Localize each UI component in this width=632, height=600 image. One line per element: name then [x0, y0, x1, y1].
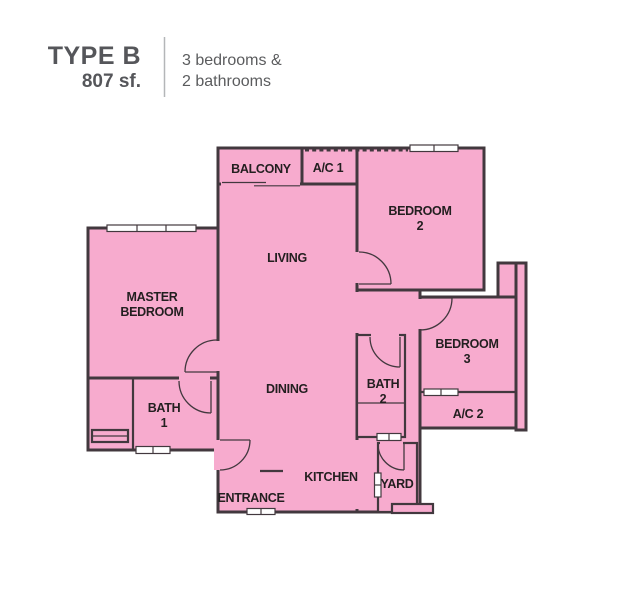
threshold-flare	[392, 504, 433, 513]
room-label-bedroom3-num: 3	[464, 352, 471, 366]
description-line2: 2 bathrooms	[182, 73, 271, 90]
floor-plan: TYPE B 807 sf. 3 bedrooms & 2 bathrooms	[0, 0, 632, 600]
room-label-bedroom2: BEDROOM	[388, 204, 451, 218]
opening-bedroom3-door	[416, 299, 424, 329]
opening-hallway	[353, 292, 361, 333]
room-label-master-line2: BEDROOM	[120, 305, 183, 319]
opening-master-door	[214, 341, 222, 371]
wall-stub-top-right	[498, 263, 516, 297]
opening-bath1-door	[179, 374, 210, 382]
room-label-ac2: A/C 2	[453, 407, 484, 421]
wall-fin-right	[516, 263, 526, 430]
room-label-bath1-num: 1	[161, 416, 168, 430]
header: TYPE B 807 sf. 3 bedrooms & 2 bathrooms	[48, 37, 282, 97]
room-label-living: LIVING	[267, 251, 307, 265]
room-label-bath2: BATH	[367, 377, 400, 391]
floor-plan-page: TYPE B 807 sf. 3 bedrooms & 2 bathrooms	[0, 0, 632, 600]
room-blocks	[88, 148, 526, 513]
room-label-entrance: ENTRANCE	[217, 491, 284, 505]
description-line1: 3 bedrooms &	[182, 52, 282, 69]
opening-entrance-door	[214, 440, 222, 470]
room-label-bedroom2-num: 2	[417, 219, 424, 233]
room-label-yard: YARD	[380, 477, 413, 491]
room-label-dining: DINING	[266, 382, 308, 396]
window-master-bedroom	[107, 225, 196, 232]
room-label-bath1: BATH	[148, 401, 181, 415]
room-label-bath2-num: 2	[380, 392, 387, 406]
unit-area-label: 807 sf.	[82, 71, 141, 92]
room-label-master-line1: MASTER	[127, 290, 178, 304]
unit-type-label: TYPE B	[48, 42, 141, 70]
room-label-kitchen: KITCHEN	[304, 470, 358, 484]
room-label-balcony: BALCONY	[231, 162, 292, 176]
opening-bath2-door	[371, 331, 399, 339]
opening-bedroom2-door	[353, 252, 361, 283]
room-label-ac1: A/C 1	[313, 161, 344, 175]
room-label-bedroom3: BEDROOM	[435, 337, 498, 351]
